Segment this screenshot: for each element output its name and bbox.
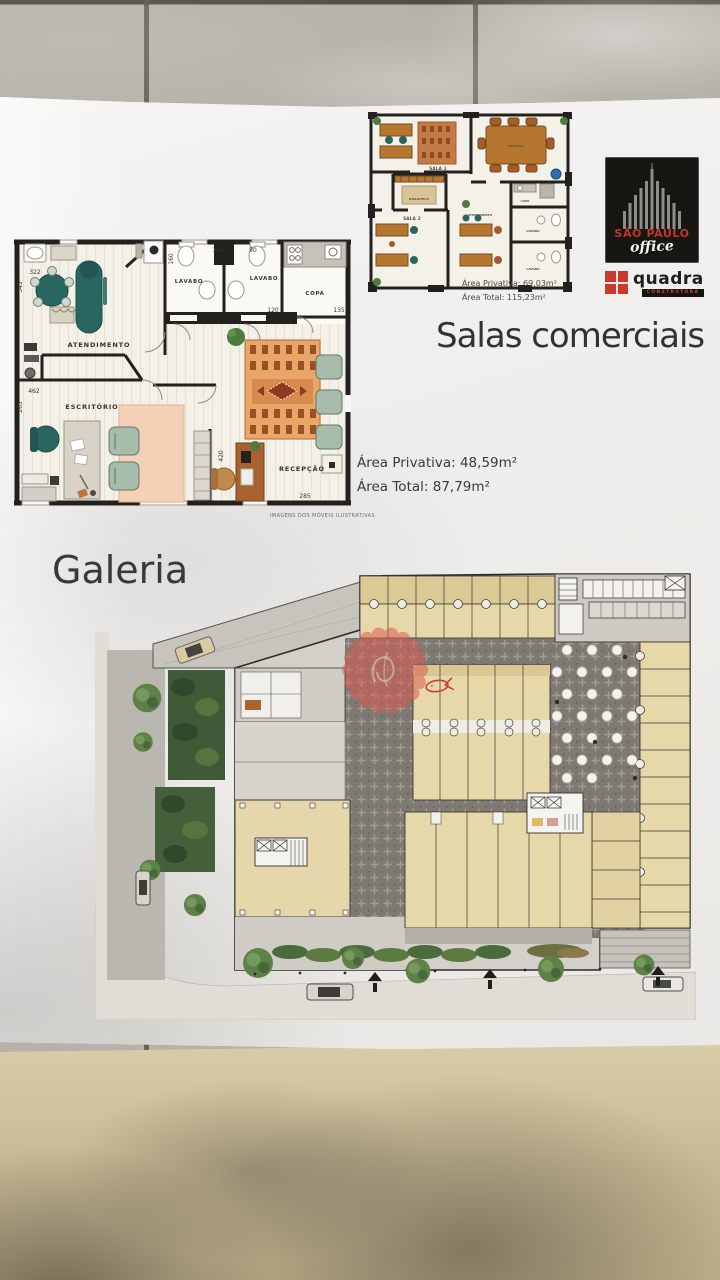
sala1-furniture: [380, 122, 456, 164]
dim-345: 345: [17, 281, 24, 293]
small-unit-areas: Área Privativa: 69,03m² Área Total: 115,…: [462, 277, 557, 305]
small-room-label-sala1: SALA 1: [429, 166, 447, 171]
office-label: office: [605, 237, 700, 256]
small-area-total: Área Total: 115,23m²: [462, 291, 557, 305]
room-label-lavabo-2: LAVABO: [250, 276, 279, 282]
dim-135: 135: [333, 307, 345, 314]
dim-265: 265: [17, 401, 24, 413]
bottom-left-hall: [235, 800, 350, 917]
construtora-label: CONSTRUTORA: [642, 289, 704, 297]
office-suite-floor-plan: SALA 1 REUNIÃO BIBLIOTECA SALA 2 ATENDIM…: [368, 112, 572, 292]
small-room-label-copa: COPA: [521, 199, 531, 203]
area-privativa: Área Privativa: 48,59m²: [357, 451, 517, 475]
dim-322: 322: [29, 269, 41, 276]
room-label-recepcao: RECEPÇÃO: [279, 464, 325, 473]
unit-areas: Área Privativa: 48,59m² Área Total: 87,7…: [357, 451, 517, 499]
small-room-label-lavabo2: LAVABO: [526, 267, 540, 271]
shelving: [194, 431, 210, 500]
furniture-disclaimer: IMAGENS DOS MÓVEIS ILUSTRATIVAS: [270, 513, 375, 519]
dim-120-top: 120: [212, 247, 224, 254]
service-block: [555, 574, 690, 642]
dental-office-floor-plan: ATENDIMENTO ESCRITÓRIO LAVABO LAVABO COP…: [14, 237, 355, 521]
area-total: Área Total: 87,79m²: [357, 475, 517, 499]
room-label-copa: COPA: [305, 291, 324, 297]
room-label-lavabo-1: LAVABO: [175, 279, 204, 285]
dim-285: 285: [299, 493, 311, 500]
left-rooms: [235, 668, 345, 812]
quadra-squares-icon: [605, 271, 628, 294]
elevator-core: [527, 793, 583, 833]
dim-160: 160: [168, 253, 175, 265]
small-area-privativa: Área Privativa: 69,03m²: [462, 277, 557, 291]
service-strip: [405, 928, 592, 944]
small-room-label-atendimento: ATENDIMENTO: [468, 213, 493, 217]
car-bottom-2: [643, 977, 683, 991]
small-room-label-sala2: SALA 2: [403, 216, 421, 221]
small-room-label-reuniao: REUNIÃO: [508, 143, 524, 148]
center-unit-cluster: [413, 665, 550, 800]
gallery-site-plan: [95, 572, 696, 1020]
hedge-beds: [155, 670, 225, 872]
brochure-paper: ATENDIMENTO ESCRITÓRIO LAVABO LAVABO COP…: [0, 0, 720, 1054]
table-surface-shadow: [0, 1040, 720, 1280]
dim-420: 420: [218, 450, 225, 462]
small-room-label-biblioteca: BIBLIOTECA: [409, 197, 430, 201]
quadra-construtora-logo: quadra CONSTRUTORA: [605, 270, 705, 300]
dim-462: 462: [28, 388, 40, 395]
dim-80: 80: [249, 247, 257, 254]
sao-paulo-office-logo: SÃO PAULO office: [605, 157, 699, 263]
car-bottom-1: [307, 984, 353, 1000]
room-label-escritorio: ESCRITÓRIO: [65, 402, 118, 411]
skyline-icon: [605, 161, 699, 231]
quadra-name: quadra: [633, 269, 704, 289]
photo-of-brochure: ATENDIMENTO ESCRITÓRIO LAVABO LAVABO COP…: [0, 0, 720, 1280]
dim-120-mid: 120: [267, 307, 279, 314]
room-label-atendimento: ATENDIMENTO: [68, 341, 131, 349]
car-left: [136, 871, 150, 905]
small-room-label-lavabo1: LAVABO: [526, 229, 540, 233]
left-sidewalk: [95, 632, 109, 902]
page-title: Salas comerciais: [436, 316, 720, 356]
